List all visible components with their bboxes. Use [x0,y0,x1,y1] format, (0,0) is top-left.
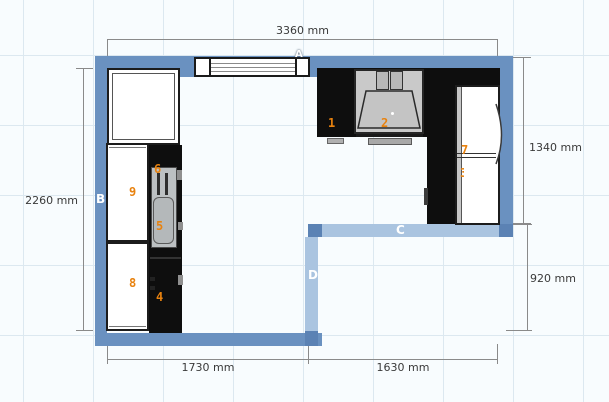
window-glass-line [211,63,295,64]
fridge-door-swing-arc [492,98,508,168]
dim-text-right-lower: 920 mm [530,273,576,284]
dim-tick [506,330,532,331]
wall-c-end-right[interactable] [499,224,513,237]
item-label-4: 4 [156,291,163,304]
cabinet-edge-line [109,326,146,327]
item-label-3-partial: 3 [460,167,464,182]
wall-label-b: B [96,193,105,205]
sink-unit[interactable] [151,167,177,248]
dim-tick [497,39,498,56]
dim-text-bottom-left: 1730 mm [172,362,244,373]
dim-line-right-upper [523,57,524,224]
hood-duct-box [390,71,403,90]
cabinet-9[interactable] [106,143,149,242]
wall-c-end-left[interactable] [308,224,322,237]
dim-text-top: 3360 mm [240,25,365,36]
counter-column-right[interactable] [427,137,458,224]
appliance-inner-line [112,73,175,140]
item-label-1: 1 [328,117,335,130]
dim-text-bottom-right: 1630 mm [367,362,439,373]
dim-line-left [83,68,84,331]
faucet-tab [178,275,183,285]
wall-label-d: D [308,269,318,281]
cabinet-handle [150,286,155,290]
dim-tick [76,68,93,69]
faucet-tab [177,170,182,180]
window-glass-line [211,71,295,72]
item-label-9: 9 [129,186,136,199]
wall-d-end-bottom[interactable] [305,331,318,346]
item-label-7: 7 [461,144,468,157]
dim-tick [308,344,309,364]
dim-tick [497,344,498,364]
cabinet-handle [150,277,155,281]
floor-plan-canvas: 3360 mm 2260 mm 1340 mm 920 mm 1730 mm 1… [0,0,609,402]
item-label-2: 2 [381,117,388,130]
hood-light-dot [391,112,394,115]
counter-front-tab [327,138,344,144]
dim-tick [107,39,108,56]
wall-label-c: C [396,224,405,236]
range-hood[interactable] [354,69,424,134]
worktop-top-right-sliver[interactable] [455,68,500,86]
wall-d[interactable] [305,237,318,331]
counter-side-tab [424,188,428,205]
wall-c[interactable] [308,224,513,237]
wall-bottom[interactable] [95,333,322,346]
cabinet-8[interactable] [106,242,149,331]
hood-funnel-shape [356,71,422,132]
dim-tick [510,57,531,58]
dim-line-bottom [107,359,497,360]
item-label-8: 8 [129,277,136,290]
drainer-slot [157,173,160,195]
dim-tick [76,330,93,331]
window-frame-divider [295,59,297,75]
item-label-5: 5 [156,220,163,233]
dim-tick [107,344,108,364]
dim-text-right-upper: 1340 mm [529,142,582,153]
dim-line-top [107,39,498,40]
hood-front-panel [368,138,412,145]
appliance-box-top-left[interactable] [107,68,180,145]
window[interactable] [194,57,310,77]
item-label-6: 6 [154,163,161,176]
faucet-tab [178,222,183,230]
dim-line-right-lower [527,225,528,331]
window-glass-line [211,67,295,68]
dim-text-left: 2260 mm [8,195,78,206]
wall-label-a: A [295,49,303,61]
cabinet-edge-line [109,147,146,148]
drainer-slot [165,173,168,195]
hood-duct-box [376,71,389,90]
counter-divider [150,257,181,259]
